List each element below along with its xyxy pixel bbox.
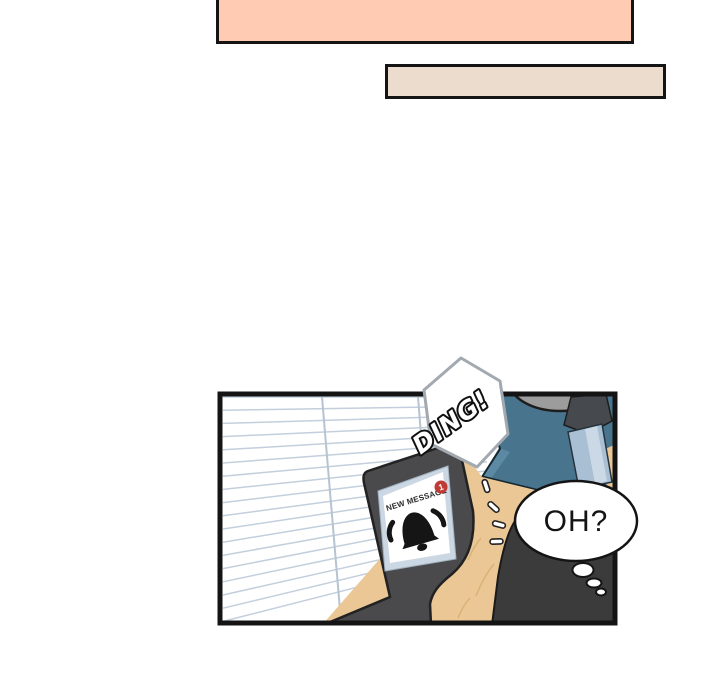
thought-trail-1 (573, 563, 594, 577)
comic-panel: NEW MESSAGE 1 DING! (0, 0, 720, 700)
thought-text: OH? (544, 505, 609, 538)
thought-trail-3 (596, 589, 606, 596)
thought-trail-2 (587, 579, 602, 588)
